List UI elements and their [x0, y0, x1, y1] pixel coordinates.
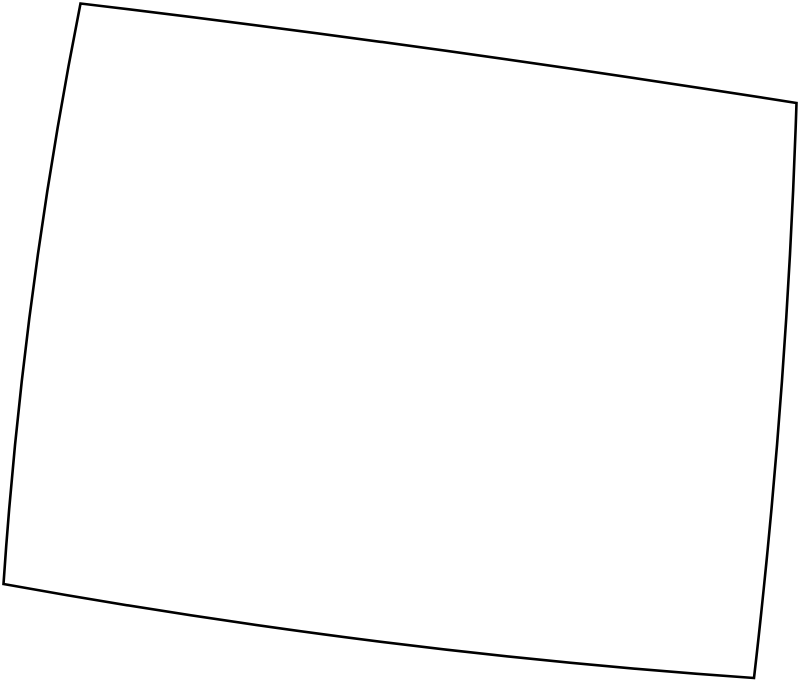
state-outline-map — [0, 0, 800, 683]
state-outline-path — [4, 4, 797, 679]
map-canvas — [0, 0, 800, 683]
